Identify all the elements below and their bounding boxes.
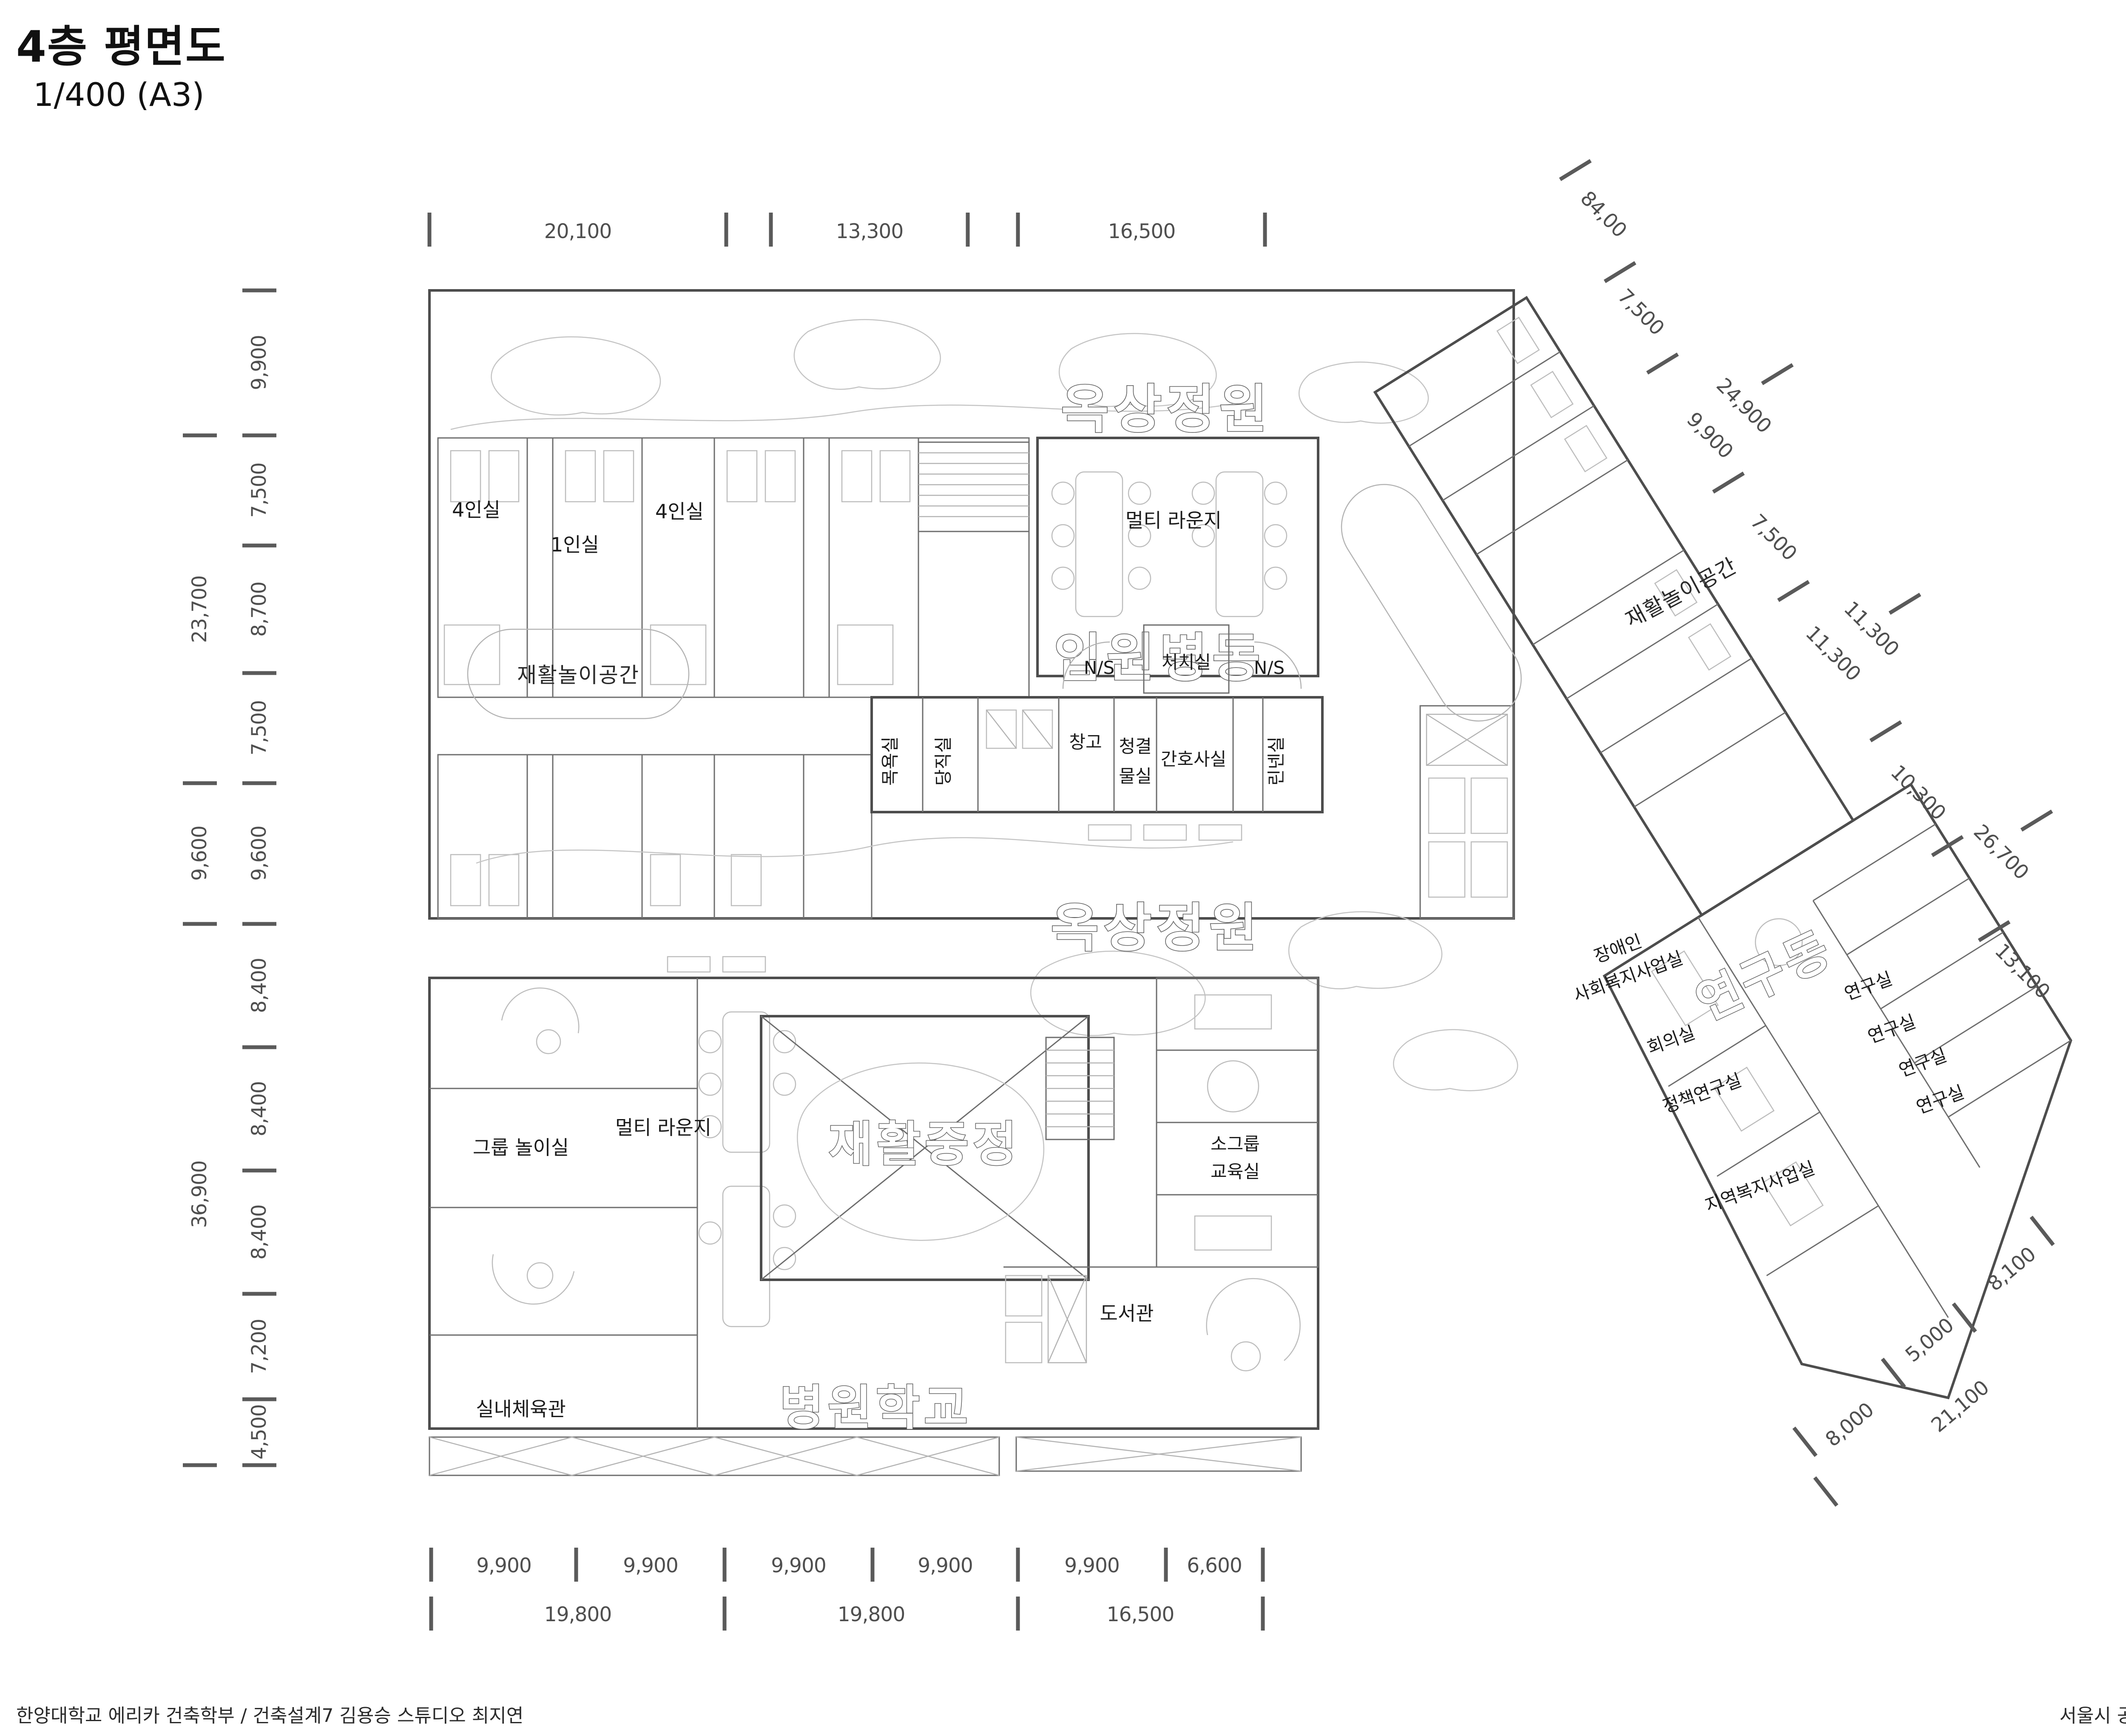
floor-plan-canvas: 옥상정원 [0, 0, 2126, 1736]
rehab-courtyard: 재활중정 [761, 1016, 1089, 1280]
room-label-meeting: 회의실 [1644, 1022, 1698, 1059]
dimensions-bottom-outer: 19,800 19,800 16,500 [431, 1597, 1263, 1631]
patient-rooms-lower-band [438, 755, 872, 918]
roof-garden-middle-landscape: 옥상정원 [476, 838, 1518, 1091]
room-label-policy-research: 정책연구실 [1660, 1069, 1744, 1117]
stair-core-lower [1046, 1037, 1114, 1139]
room-label-linen: 린넨실 [1266, 736, 1287, 786]
dim-left-inner-6: 8,400 [247, 958, 271, 1013]
dim-wing-ne-7: 11,300 [1801, 622, 1865, 686]
room-label-library: 도서관 [1100, 1302, 1154, 1325]
room-label-research-4: 연구실 [1913, 1082, 1967, 1118]
room-label-4bed-2: 4인실 [655, 500, 704, 523]
area-label-roof-garden-upper: 옥상정원 [1061, 379, 1273, 440]
footer-credit-left: 한양대학교 에리카 건축학부 / 건축설계7 김용승 스튜디오 최지연 [16, 1700, 523, 1727]
room-label-nurse-office: 간호사실 [1161, 749, 1227, 770]
dim-wing-ne-4: 9,900 [1682, 408, 1738, 463]
dim-top-3: 16,500 [1108, 220, 1175, 243]
dim-bottom-inner-3: 9,900 [771, 1554, 826, 1577]
footer-project-right: 서울시 공공 어린이 재활병원. 도담도담 재활병원 [2059, 1700, 2126, 1727]
dim-wing-se-2: 5,000 [1901, 1313, 1958, 1367]
room-label-bath: 목욕실 [880, 736, 901, 786]
room-label-clean-utility-line1: 청결 [1119, 736, 1151, 757]
room-label-indoor-gym: 실내체육관 [476, 1398, 566, 1421]
upper-ward-block: 4인실 1인실 4인실 [429, 290, 1514, 972]
ward-service-row: 목욕실 당직실 창고 청결 물실 간호사실 린넨실 [872, 697, 1322, 812]
dim-wing-ne-5: 7,500 [1746, 510, 1802, 565]
dim-wing-ne-10: 13,100 [1990, 939, 2054, 1003]
page-title: 4층 평면도 [16, 12, 226, 74]
dim-left-inner-10: 4,500 [247, 1404, 271, 1460]
roof-garden-upper-landscape: 옥상정원 [451, 320, 1428, 440]
dim-left-inner-7: 8,400 [247, 1081, 271, 1136]
room-label-research-1: 연구실 [1842, 968, 1895, 1005]
dim-wing-ne-2: 7,500 [1613, 284, 1669, 340]
room-label-research-2: 연구실 [1865, 1011, 1919, 1048]
patient-rooms-upper-band: 4인실 1인실 4인실 [438, 438, 1029, 697]
dimensions-bottom-inner: 9,900 9,900 9,900 9,900 9,900 6,600 [431, 1548, 1263, 1582]
drawing-sheet: 4층 평면도 1/400 (A3) 옥상정원 [0, 0, 2126, 1736]
room-label-ns-right: N/S [1254, 657, 1285, 678]
classroom-column: 소그룹 교육실 [1157, 978, 1318, 1267]
dim-bottom-inner-6: 6,600 [1187, 1554, 1242, 1577]
room-label-regional-welfare: 지역복지사업실 [1703, 1157, 1818, 1216]
dim-wing-se-4: 21,100 [1927, 1376, 1994, 1437]
dim-bottom-inner-4: 9,900 [918, 1554, 973, 1577]
library-zone: 도서관 [1003, 1267, 1318, 1371]
left-room-column: 그룹 놀이실 실내체육관 [429, 978, 697, 1429]
rehab-play-area-main: 재활놀이공간 [468, 629, 689, 719]
stair-core-upper [918, 442, 1029, 531]
drawing-scale: 1/400 (A3) [33, 76, 205, 114]
dim-wing-ne-1: 84,00 [1576, 187, 1631, 242]
room-label-multi-lounge-upper: 멀티 라운지 [1126, 509, 1222, 532]
room-label-rehab-play-main: 재활놀이공간 [517, 663, 640, 688]
room-label-duty: 당직실 [933, 736, 954, 786]
dim-wing-se-3: 8,000 [1821, 1398, 1879, 1451]
dim-left-inner-1: 9,900 [247, 335, 271, 390]
room-label-welfare-line1: 장애인 [1591, 931, 1645, 967]
dim-left-inner-4: 7,500 [247, 700, 271, 756]
room-label-treatment: 처치실 [1162, 652, 1211, 673]
dim-bottom-outer-1: 19,800 [544, 1603, 611, 1626]
dim-bottom-inner-2: 9,900 [623, 1554, 678, 1577]
room-label-1bed: 1인실 [551, 533, 599, 556]
dim-wing-ne-6: 11,300 [1839, 597, 1903, 661]
dimensions-left-outer: 23,700 9,600 36,900 [183, 435, 217, 1465]
room-label-rehab-play-wing: 재활놀이공간 [1621, 553, 1741, 632]
dim-left-outer-1: 23,700 [188, 576, 211, 643]
research-wing-labels: 재활놀이공간 연구동 장애인 사회복지사업실 회의실 정책연구실 지역복지사업실… [1571, 553, 1967, 1216]
area-label-roof-garden-middle: 옥상정원 [1051, 898, 1262, 958]
dim-left-inner-3: 8,700 [247, 582, 271, 637]
entrance-canopy [429, 1437, 1301, 1475]
room-label-group-play: 그룹 놀이실 [473, 1136, 569, 1159]
room-label-4bed-1: 4인실 [452, 498, 500, 521]
dim-bottom-outer-3: 16,500 [1107, 1603, 1174, 1626]
dim-left-outer-2: 9,600 [188, 826, 211, 881]
room-label-multi-lounge-lower: 멀티 라운지 [615, 1116, 711, 1139]
dimensions-wing-se: 8,100 5,000 8,000 21,100 [1794, 1217, 2053, 1506]
room-label-small-group-line2: 교육실 [1211, 1161, 1260, 1182]
dim-left-inner-2: 7,500 [247, 463, 271, 518]
area-label-hospital-school: 병원학교 [780, 1381, 972, 1436]
dimensions-top: 20,100 13,300 16,500 [429, 213, 1265, 247]
dim-bottom-inner-1: 9,900 [476, 1554, 531, 1577]
dim-top-1: 20,100 [544, 220, 611, 243]
room-label-ns-left: N/S [1084, 657, 1114, 678]
dim-bottom-outer-2: 19,800 [838, 1603, 905, 1626]
dimensions-left-inner: 9,900 7,500 8,700 7,500 9,600 8,400 8,40… [242, 290, 276, 1465]
dim-left-inner-5: 9,600 [247, 826, 271, 881]
room-label-storage: 창고 [1069, 732, 1102, 753]
lower-block: 그룹 놀이실 실내체육관 멀티 라운지 [429, 978, 1318, 1475]
dim-left-outer-3: 36,900 [188, 1161, 211, 1228]
room-label-small-group-line1: 소그룹 [1211, 1134, 1260, 1154]
dim-left-inner-9: 7,200 [247, 1319, 271, 1374]
dim-left-inner-8: 8,400 [247, 1205, 271, 1260]
elevator-core-right [1420, 706, 1514, 918]
dim-bottom-inner-5: 9,900 [1064, 1554, 1120, 1577]
dim-top-2: 13,300 [836, 220, 903, 243]
area-label-rehab-courtyard: 재활중정 [829, 1117, 1021, 1172]
room-label-clean-utility-line2: 물실 [1119, 766, 1151, 787]
